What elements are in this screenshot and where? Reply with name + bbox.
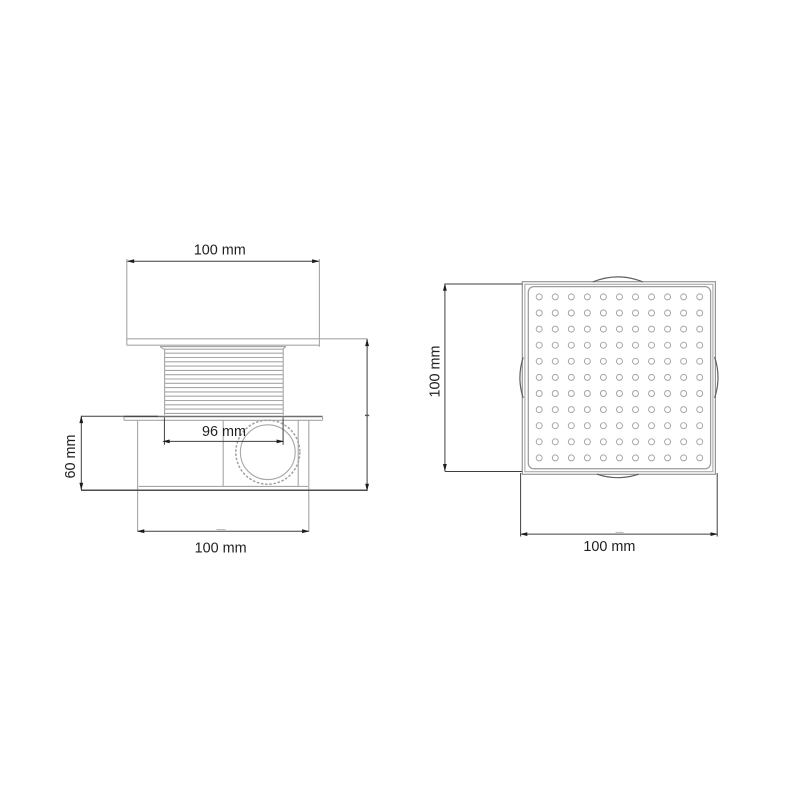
svg-text:100 mm: 100 mm — [427, 345, 443, 397]
svg-text:100 mm: 100 mm — [583, 539, 635, 555]
svg-text:100 mm: 100 mm — [194, 242, 246, 258]
svg-text:100 mm: 100 mm — [195, 540, 247, 556]
svg-text:60 mm: 60 mm — [63, 434, 79, 478]
svg-text:96 mm: 96 mm — [202, 424, 246, 440]
